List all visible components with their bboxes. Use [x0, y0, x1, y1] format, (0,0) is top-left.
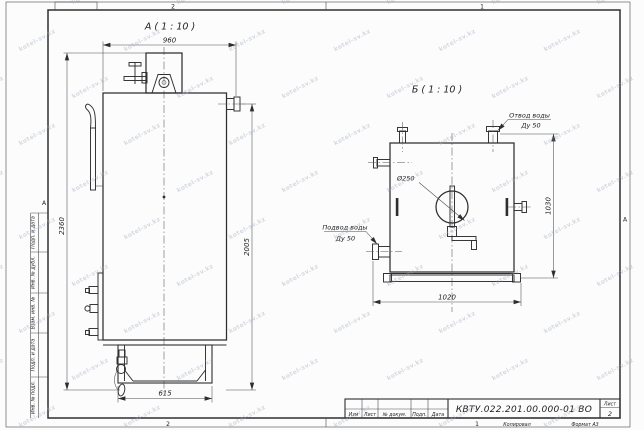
- water-outlet-pipe: Отвод воды Ду 50: [487, 112, 552, 153]
- door-hinge-strip: [85, 273, 103, 340]
- pipe-stub: [368, 158, 412, 169]
- boiler-body: [103, 93, 227, 340]
- dim-615: 615: [118, 386, 212, 403]
- sheet-frame: 2 1 2 1 А А Копировал Формат А3: [6, 2, 630, 428]
- zone-letter-right: А: [623, 217, 628, 224]
- margin-column-label: Взам. инв. №: [31, 297, 37, 330]
- inner-tab: [506, 198, 509, 216]
- ash-door-latch: [114, 350, 127, 396]
- dim-text: 960: [163, 37, 177, 45]
- margin-columns: Подп. и дата Инв. № дубл. Взам. инв. № П…: [31, 213, 48, 418]
- view-b: Б ( 1 : 10 ) Ø250: [322, 85, 558, 313]
- document-number: КВТУ.022.201.00.000-01 ВО: [456, 405, 592, 415]
- margin-column-label: Инв. № дубл.: [31, 256, 37, 289]
- door-handle-upper: [86, 104, 103, 190]
- margin-column-label: Подп. и дата: [31, 339, 37, 372]
- dim-text: 1020: [438, 294, 456, 302]
- inlet-label: Подвод воды: [322, 224, 367, 232]
- pipe-stub: [508, 202, 532, 213]
- corner-stamp-box: [55, 2, 97, 10]
- inlet-size-label: Ду 50: [335, 235, 355, 243]
- footer-copied-label: Копировал: [503, 422, 530, 428]
- outlet-label: Отвод воды: [509, 112, 550, 120]
- title-block-col: Дата: [431, 412, 444, 418]
- zone-number: 1: [475, 421, 479, 428]
- pipe-stub: [398, 122, 408, 152]
- drawing-canvas: 2 1 2 1 А А Копировал Формат А3 Подп. и …: [0, 0, 644, 430]
- dim-1030: 1030: [500, 134, 558, 278]
- title-block-col: Лист: [363, 412, 376, 418]
- title-block-col: № докум.: [382, 412, 407, 418]
- flue-opening: [436, 186, 477, 250]
- outlet-size-label: Ду 50: [520, 122, 540, 130]
- dim-text: Ø250: [396, 175, 415, 183]
- margin-column-label: Инв. № подл.: [31, 381, 37, 414]
- dim-960: 960: [103, 37, 236, 97]
- zone-number: 1: [480, 4, 484, 11]
- dim-text: 2005: [243, 238, 251, 256]
- view-b-title: Б ( 1 : 10 ): [412, 85, 462, 96]
- zone-number: 2: [166, 421, 170, 428]
- title-block-col: Изм: [349, 412, 359, 418]
- dim-text: 615: [158, 390, 172, 398]
- footer-format-label: Формат А3: [571, 422, 598, 428]
- dim-text: 2360: [58, 217, 66, 235]
- view-a-title: А ( 1 : 10 ): [144, 22, 195, 33]
- view-a: А ( 1 : 10 ): [58, 22, 256, 403]
- inner-tab: [396, 198, 399, 216]
- dim-2005: 2005: [226, 104, 256, 390]
- sheet-number: 2: [608, 410, 612, 418]
- dim-1020: 1020: [373, 261, 521, 306]
- title-block: Изм Лист № докум. Подп. Дата КВТУ.022.20…: [345, 399, 620, 418]
- title-block-col: Подп.: [412, 412, 427, 418]
- drawing-sheet: kotel-sv.kzkotel-sv.kzkotel-sv.kzkotel-s…: [0, 0, 644, 430]
- margin-column-label: Подп. и дата: [31, 216, 37, 249]
- zone-letter-left: А: [42, 200, 47, 207]
- damper-lever: [124, 62, 147, 84]
- dim-text: 1030: [545, 197, 553, 215]
- sheet-label: Лист: [603, 402, 616, 408]
- zone-number: 2: [171, 4, 175, 11]
